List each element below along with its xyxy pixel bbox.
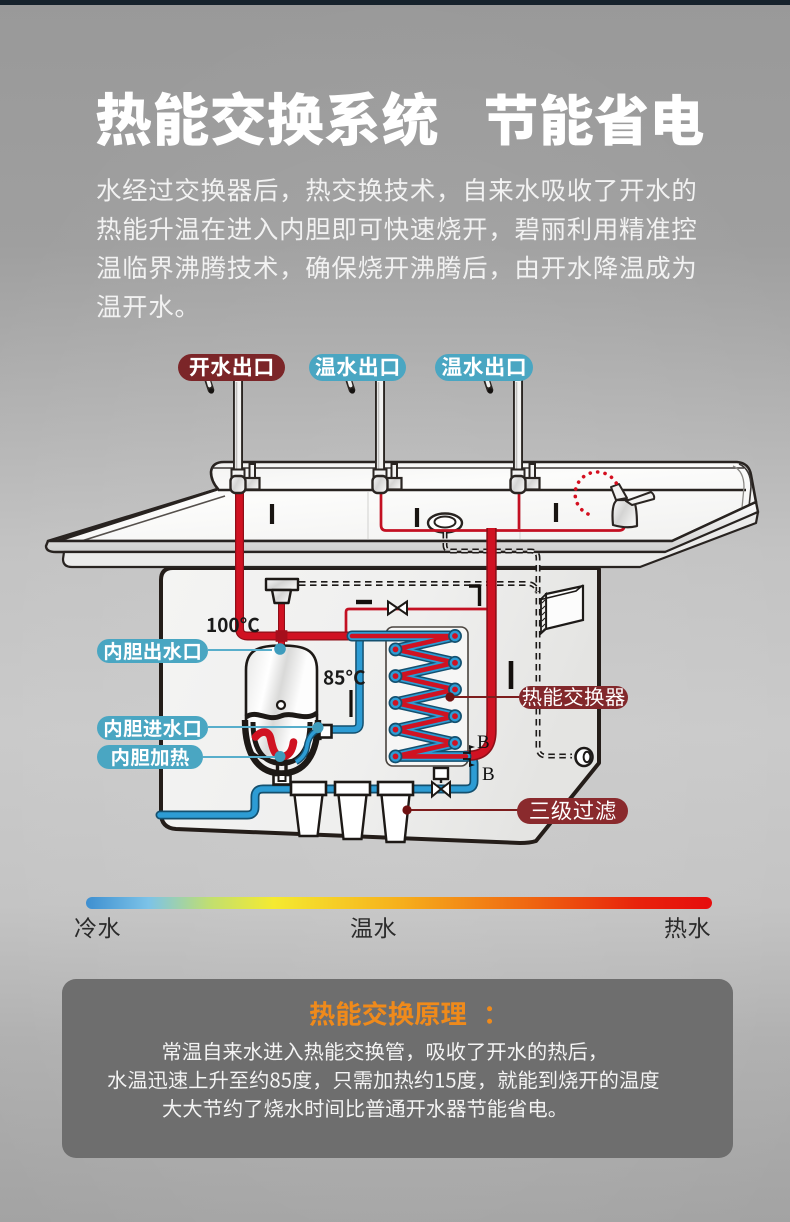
svg-text:B: B — [477, 732, 490, 753]
svg-text:B: B — [482, 764, 495, 785]
